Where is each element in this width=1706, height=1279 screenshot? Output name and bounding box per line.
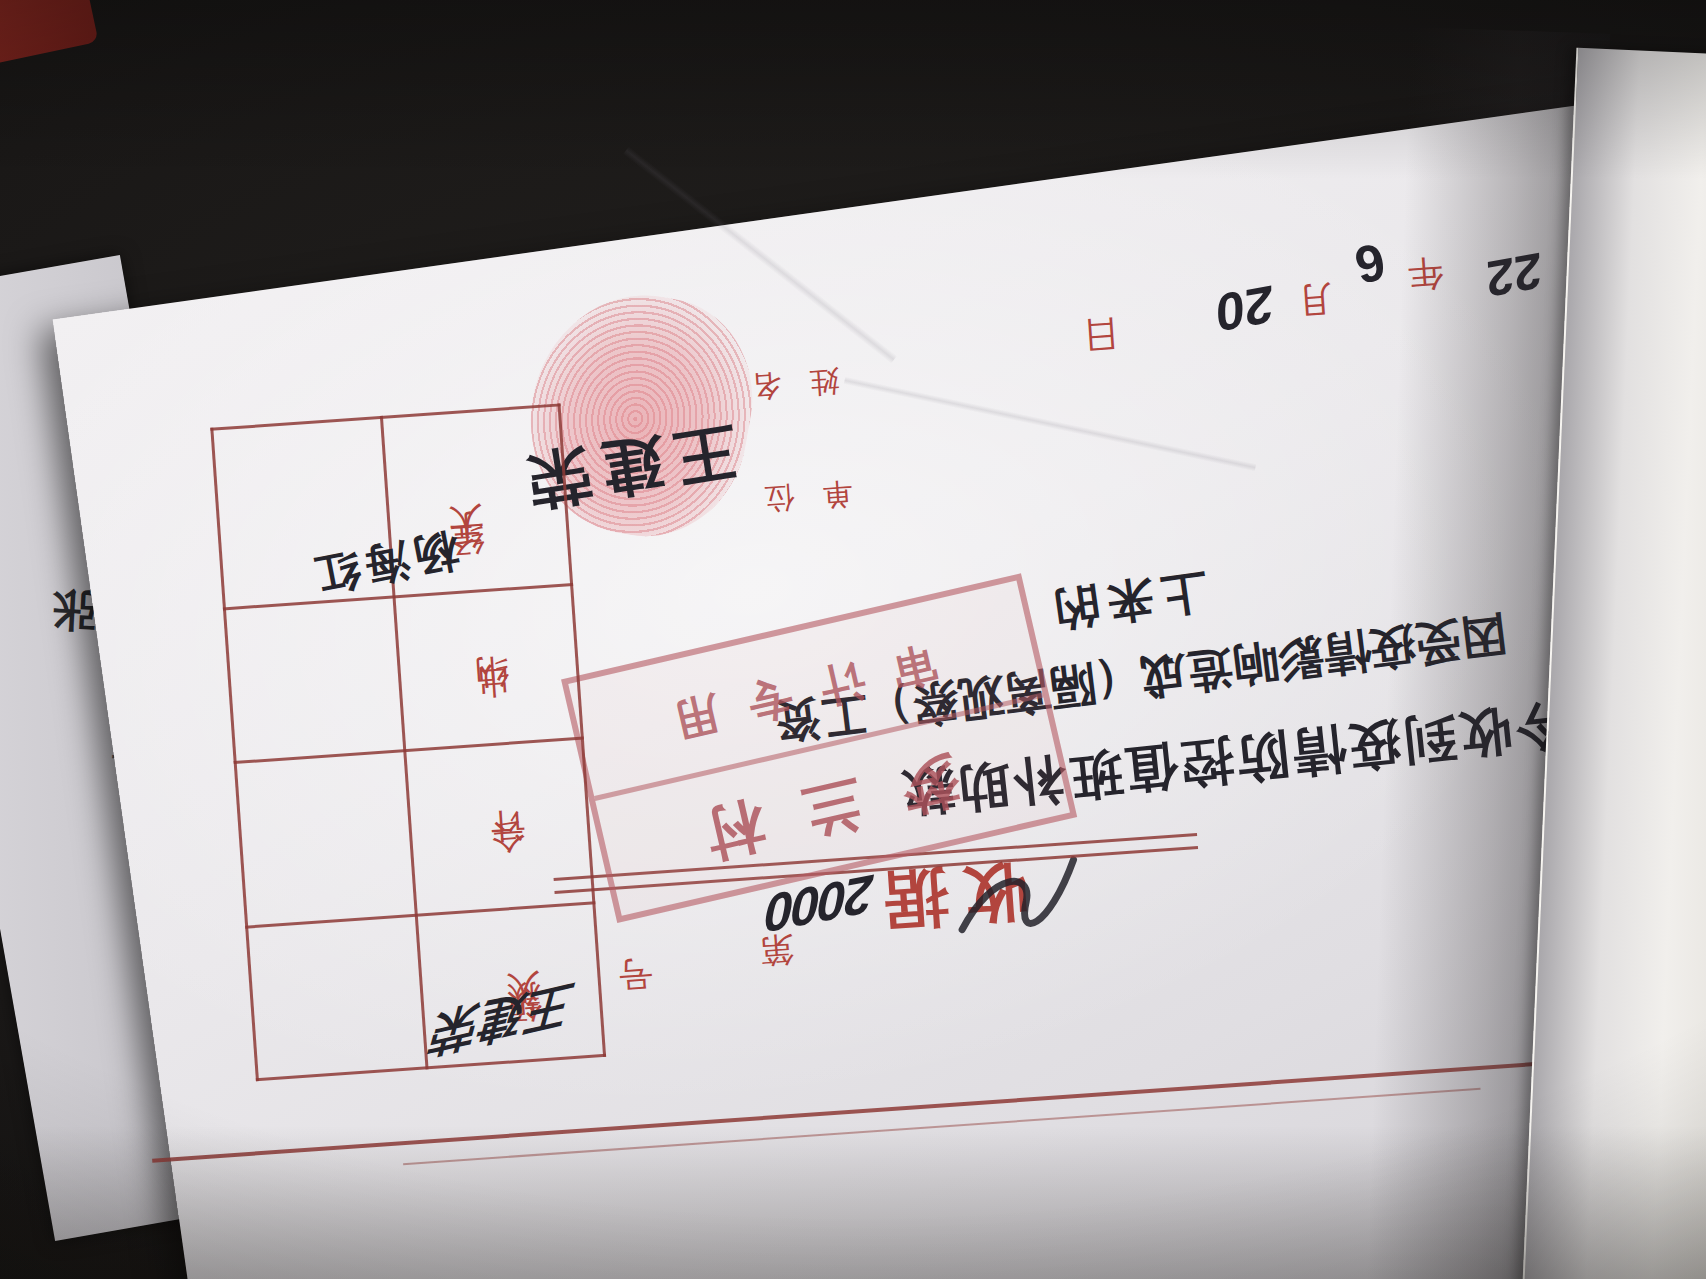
table-divider-vertical	[380, 416, 429, 1070]
table-label-cashier: 出纳	[470, 704, 517, 727]
table-border-bottom	[210, 403, 560, 430]
stamp-fragment-corner	[0, 0, 98, 65]
handwritten-month: 6	[1350, 231, 1391, 296]
unit-label: 单位	[735, 472, 854, 521]
table-row-divider-1	[245, 901, 595, 928]
table-row-divider-2	[234, 737, 584, 764]
number-suffix-label: 号	[617, 949, 654, 997]
handwritten-day: 20	[1216, 273, 1273, 344]
signature-payee: 王建荣	[431, 969, 575, 1066]
table-border-right	[210, 428, 259, 1082]
day-label: 日	[1081, 308, 1120, 359]
photo-of-receipt: 张 付 收据 第 号 2000 今收 币 今收到疫情防控值班补助款 因受疫情影响…	[0, 0, 1706, 1279]
form-top-border-line-2	[403, 1088, 1481, 1165]
handwritten-content-line-3: 上来的	[1042, 558, 1211, 642]
month-label: 月	[1295, 273, 1334, 324]
table-label-accountant: 会计	[486, 859, 533, 882]
